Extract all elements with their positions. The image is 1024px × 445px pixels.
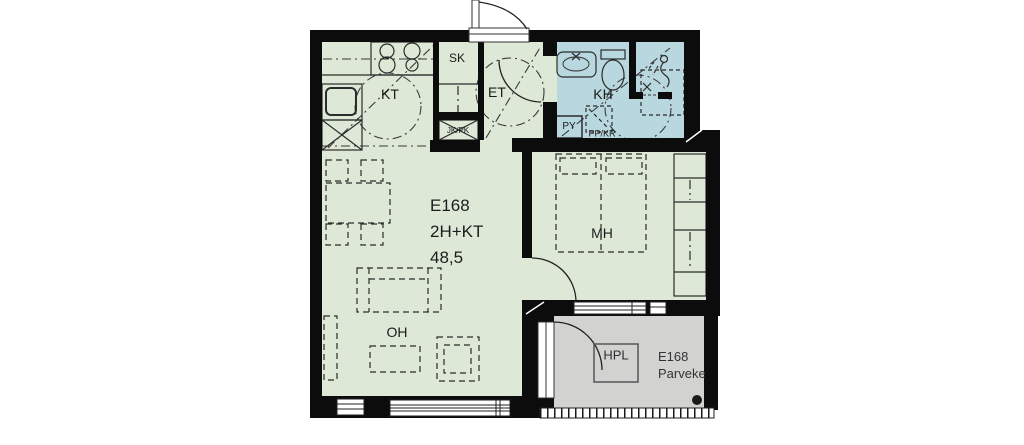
kitchen-label: KT (381, 87, 399, 101)
window-icon (650, 302, 666, 314)
apartment-layout: 2H+KT (430, 223, 483, 240)
apartment-id: E168 (430, 197, 470, 214)
floor-plan-drawing (0, 0, 1024, 445)
floor-plan: KT SK ET KH JK/PK PY PP/KR MH OH E168 2H… (0, 0, 1024, 445)
window-icon (337, 399, 364, 415)
balcony-railing-icon (540, 408, 714, 418)
bedroom-label: MH (591, 226, 613, 240)
apartment-area: 48,5 (430, 249, 463, 266)
dryer-label: PP/KR (588, 130, 615, 139)
hall-label: ET (488, 85, 506, 99)
washing-machine-label: PY (562, 122, 575, 132)
balcony-id-label: E168 (658, 350, 688, 363)
window-icon (574, 302, 646, 314)
bathroom-label: KH (593, 87, 612, 101)
cleaning-closet-label: SK (449, 52, 465, 64)
living-room-label: OH (387, 325, 408, 339)
fridge-freezer-label: JK/PK (447, 127, 469, 135)
door-swing-icon (479, 2, 527, 29)
balcony-name-label: Parveke (658, 367, 706, 380)
drain-dot-icon (692, 395, 702, 405)
entrance-door (469, 0, 529, 42)
floor-areas (322, 42, 706, 408)
hpl-label: HPL (603, 349, 628, 362)
window-icon (390, 400, 510, 416)
